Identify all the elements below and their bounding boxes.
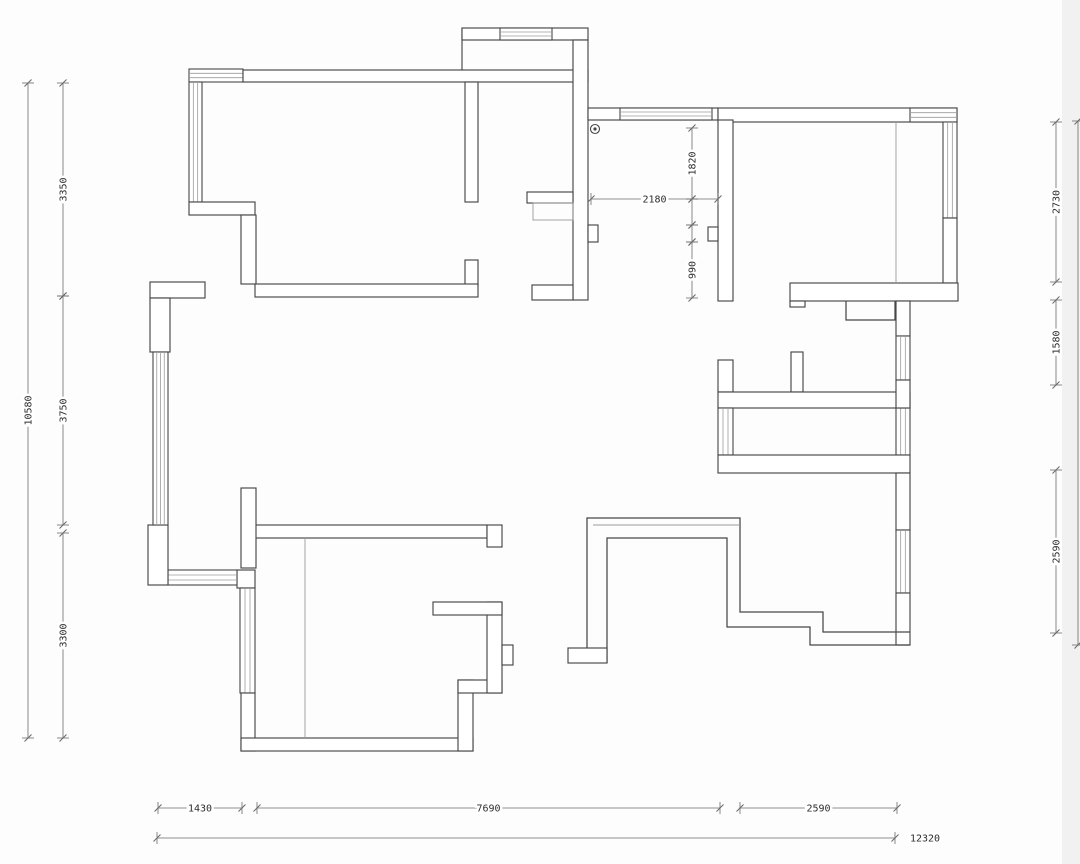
dim-left-upper-label: 3750 <box>59 398 70 422</box>
pier-b <box>791 352 803 392</box>
dim-left-overall-label: 10580 <box>24 395 35 425</box>
wall-bedroom-right-lower <box>465 260 478 286</box>
wall-right-a <box>943 218 957 283</box>
wall-bottomleft-top <box>255 525 487 538</box>
wall-foot <box>790 301 805 307</box>
wall-left-box <box>148 525 168 585</box>
dim-bottom-1-label: 1430 <box>188 804 212 815</box>
dim-right-3-label: 2590 <box>1052 539 1063 563</box>
wall-topright-bottom <box>790 283 958 301</box>
wall-endcap <box>487 525 502 547</box>
entry-notch <box>588 225 598 242</box>
window-shaft-left <box>718 408 733 455</box>
pier-a <box>718 360 733 392</box>
wall-topright-left <box>718 120 733 301</box>
wall-bedroom-left <box>241 215 256 284</box>
dim-right-1-label: 2730 <box>1052 190 1063 214</box>
wall-shaft-top <box>718 392 910 408</box>
window-right-mid <box>896 336 910 380</box>
wall-right-b <box>896 301 910 336</box>
wall-pier-bottomleft <box>241 488 256 568</box>
window-left-upper <box>189 82 202 202</box>
wall-bedroom-right-upper <box>465 82 478 202</box>
dim-bottom-2-label: 7690 <box>476 804 500 815</box>
dim-left-upper-label: 3350 <box>59 177 70 201</box>
window-left-bottom <box>168 570 237 585</box>
dim-interior-v-label: 1820 <box>688 151 699 175</box>
wall-stub-left <box>189 202 255 215</box>
wall-jog-v <box>150 298 170 352</box>
wall-right-c <box>896 380 910 408</box>
window-hall-top <box>620 108 712 120</box>
wall-bl-h2 <box>433 602 502 615</box>
wall-bedroom-top <box>243 70 588 82</box>
page-edge-shade <box>1062 0 1080 864</box>
wall-right-d <box>896 473 910 530</box>
window-right-lower <box>896 530 910 593</box>
wall-right-e <box>896 593 910 645</box>
stair-inner <box>607 538 910 663</box>
dim-bottom-3-label: 2590 <box>806 804 830 815</box>
entry-stub-lower <box>532 285 573 300</box>
entry-stub-upper <box>527 192 573 203</box>
wall-shaft-bottom <box>718 455 910 473</box>
wall-notch-left <box>708 227 718 241</box>
wall-entry-right <box>573 40 588 300</box>
window-shaft-right <box>896 408 910 455</box>
dim-interior-h-label: 2180 <box>642 195 666 206</box>
wall-bottomleft-bottom <box>241 738 473 751</box>
wall-bump <box>502 645 513 665</box>
wall-jog-h <box>150 282 205 298</box>
window-right-upper <box>943 122 957 218</box>
peephole-icon <box>593 127 596 130</box>
window-topright-corner <box>910 108 957 122</box>
floor-plan: 1058033503750330027301580259018209902180… <box>0 0 1080 864</box>
dim-left-lower-label: 3300 <box>59 623 70 647</box>
wall-corner-box <box>237 570 255 588</box>
wall-bedroom-bottom <box>255 284 478 297</box>
dim-right-2-label: 1580 <box>1052 330 1063 354</box>
window-top-left <box>189 69 243 82</box>
closet-outline <box>846 301 895 320</box>
stair-foot <box>568 648 607 663</box>
bay-window <box>500 28 552 40</box>
window-bottomleft <box>240 588 255 693</box>
entry-cabinet <box>533 203 573 220</box>
wall-bl-v2 <box>487 602 502 693</box>
floor-plan-page: 1058033503750330027301580259018209902180… <box>0 0 1080 864</box>
dim-bottom-total-label: 12320 <box>910 834 940 845</box>
dim-interior-v-label: 990 <box>688 261 699 279</box>
